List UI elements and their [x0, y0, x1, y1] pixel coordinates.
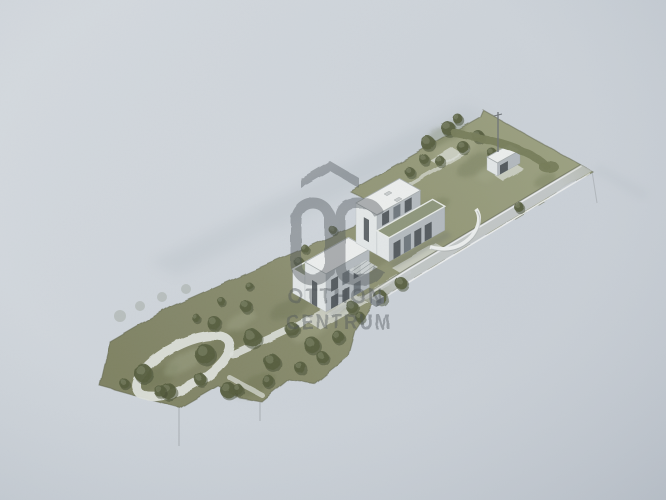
- paper-grain: [0, 0, 666, 500]
- site-plan-photo: OTTHON CENTRUM: [0, 0, 666, 500]
- site-plan-rendering: OTTHON CENTRUM: [0, 0, 666, 500]
